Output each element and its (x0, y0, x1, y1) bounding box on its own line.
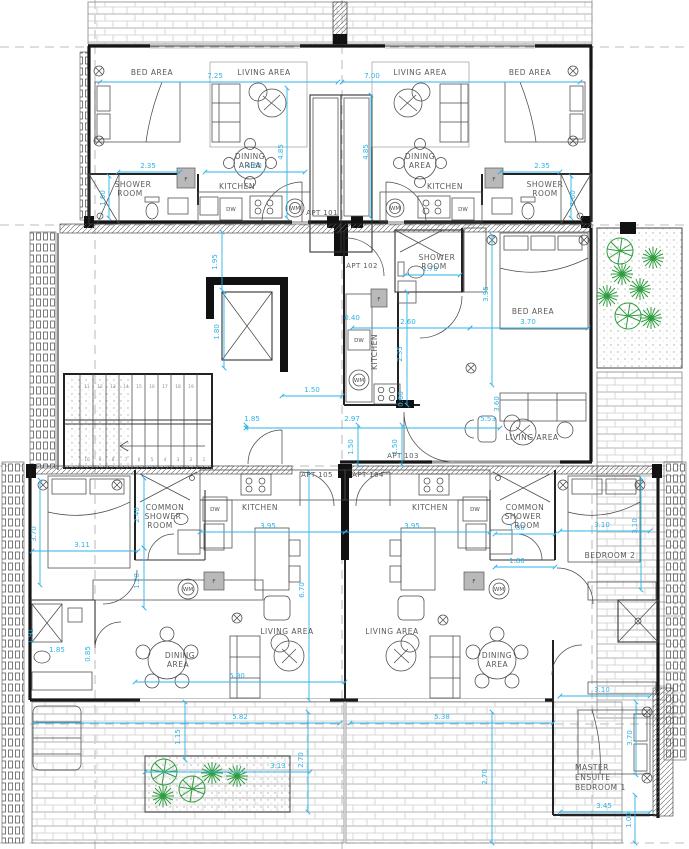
dim-1-91: 1.91 (27, 628, 35, 644)
floor-plan-canvas: 7.25 7.00 4.85 4.85 2.35 4.60 1.60 2.35 … (0, 0, 689, 849)
tr-shower-label-1: SHOWER (527, 180, 564, 189)
apt104-living (386, 596, 460, 698)
top-right-bed (505, 82, 585, 142)
svg-text:3: 3 (177, 457, 180, 463)
dim-3-13: 3.13 (270, 762, 286, 770)
apt102-dw-label: DW (354, 338, 364, 344)
svg-text:9: 9 (99, 457, 102, 463)
bottom-left-planter (145, 756, 290, 812)
tr-dining-label-2: AREA (409, 161, 432, 170)
dim-2-70-a: 2.70 (297, 752, 305, 768)
apt103-label: APT 103 (387, 452, 419, 460)
svg-text:2: 2 (190, 457, 193, 463)
dim-5-53: 5.53 (480, 415, 496, 423)
dim-1-60-a: 1.60 (99, 190, 107, 206)
svg-text:18: 18 (175, 384, 181, 390)
apt105-common-label-3: ROOM (147, 521, 173, 530)
apt104-common-label-1: COMMON (506, 503, 545, 512)
apt104-wm-label: WM (494, 587, 504, 593)
circulation-core (58, 224, 340, 470)
apt101-sofa (212, 84, 240, 142)
dim-1-60-b: 1.60 (569, 190, 577, 206)
dim-1-50-a: 1.50 (304, 386, 320, 394)
apt104-dining-label-2: AREA (486, 660, 509, 669)
apt102-shower-label-2: ROOM (421, 262, 447, 271)
svg-text:1: 1 (203, 457, 206, 463)
apt105-wardrobe-2 (32, 672, 92, 690)
tr-dining-label-1: DINING (405, 152, 435, 161)
apt105-wm-label: WM (183, 587, 193, 593)
svg-text:5: 5 (151, 457, 154, 463)
dim-2-40: 2.40 (133, 507, 141, 523)
dim-2-35-a: 2.35 (140, 162, 156, 170)
dim-5-38: 5.38 (434, 713, 450, 721)
apt105-dining-label-2: AREA (167, 660, 190, 669)
apt102-kitchen-label: KITCHEN (370, 334, 379, 370)
dim-1-80-a: 1.80 (213, 324, 221, 340)
dim-5-82: 5.82 (232, 713, 248, 721)
apt105-kitchen-label: KITCHEN (242, 503, 278, 512)
tr-bed-area-label: BED AREA (509, 68, 552, 77)
master-label-1: MASTER (575, 763, 609, 772)
dim-5-90: 5.90 (229, 672, 245, 680)
apt104-common-label-2: SHOWER (505, 512, 542, 521)
dim-3-70-a: 3.70 (520, 318, 536, 326)
apt101-bed-area-label: BED AREA (131, 68, 174, 77)
dim-7-00: 7.00 (364, 72, 380, 80)
dim-3-11: 3.11 (74, 541, 90, 549)
apt105-label: APT 105 (301, 471, 333, 479)
apt104-dining-label-1: DINING (482, 651, 512, 660)
apt102-living-area-label: LIVING AREA (505, 433, 559, 442)
dim-0-40: 0.40 (344, 314, 360, 322)
dim-3-10-b: 3.10 (631, 518, 639, 534)
svg-text:7: 7 (125, 457, 128, 463)
apt102-wardrobe (464, 228, 486, 292)
apt101-living-area-label: LIVING AREA (237, 68, 291, 77)
svg-text:10: 10 (84, 457, 90, 463)
apt105-dw-label: DW (210, 507, 220, 513)
apt105-f-label: F (212, 579, 215, 585)
apt104-f-label: F (472, 579, 475, 585)
dim-3-45: 3.45 (596, 802, 612, 810)
svg-text:12: 12 (97, 384, 103, 390)
dim-3-60: 3.60 (493, 396, 501, 412)
corridor-door (248, 430, 282, 464)
dim-1-80-c: 1.80 (509, 557, 525, 565)
tr-wm-label: WM (390, 206, 400, 212)
svg-text:13: 13 (110, 384, 116, 390)
apt105-island (255, 528, 289, 590)
apt101-f-label: F (184, 177, 187, 183)
apt101-shower-label-1: SHOWER (115, 180, 152, 189)
dim-1-85-a: 1.85 (244, 415, 260, 423)
apt101-bed (95, 82, 180, 142)
apt105-living (230, 596, 304, 698)
apt102-entry-door (346, 238, 384, 276)
apt104-bedroom2-door (557, 568, 593, 604)
top-terrace (88, 2, 592, 44)
apt102-bedroom-door (420, 296, 462, 338)
svg-text:19: 19 (188, 384, 194, 390)
dim-3-10-a: 3.10 (594, 521, 610, 529)
apt105-ensuite (30, 600, 121, 663)
apt101-kitchen-label: KITCHEN (219, 182, 255, 191)
tr-dw-label: DW (458, 207, 468, 213)
dim-3-70-b: 3.70 (30, 526, 38, 542)
apt101-shower-label-2: ROOM (117, 189, 143, 198)
dim-6-70: 6.70 (298, 582, 306, 598)
dim-2-97: 2.97 (344, 415, 360, 423)
dim-2-35-c: 2.35 (396, 346, 404, 362)
svg-text:8: 8 (112, 457, 115, 463)
dim-2-35-b: 2.35 (534, 162, 550, 170)
tr-living-area-label: LIVING AREA (393, 68, 447, 77)
dim-7-25: 7.25 (207, 72, 223, 80)
apt101-label: APT 101 (306, 209, 338, 217)
dim-2-60: 2.60 (400, 318, 416, 326)
floor-plan-drawing: 7.25 7.00 4.85 4.85 2.35 4.60 1.60 2.35 … (0, 0, 689, 849)
dim-1-50-b: 1.50 (347, 439, 355, 455)
apt101-unit (89, 62, 310, 224)
apt104-kitchen (345, 470, 509, 599)
apt104-common-label-3: ROOM (514, 521, 540, 530)
apt105-dining-label-1: DINING (165, 651, 195, 660)
dim-4-85-left: 4.85 (277, 144, 285, 160)
dim-1-00: 1.00 (625, 812, 633, 828)
tr-f-label: F (492, 177, 495, 183)
dim-3-95-c: 3.95 (404, 522, 420, 530)
dim-4-85-right: 4.85 (362, 144, 370, 160)
apt105-living-area-label: LIVING AREA (260, 627, 314, 636)
apt102-bed-area-label: BED AREA (512, 307, 555, 316)
tr-shower-label-2: ROOM (532, 189, 558, 198)
apt104-bedroom2-label: BEDROOM 2 (585, 551, 636, 560)
apt102-f-label: F (377, 297, 380, 303)
apt104-living-area-label: LIVING AREA (365, 627, 419, 636)
apt102-label: APT 102 (346, 262, 378, 270)
tr-kitchen-label: KITCHEN (427, 182, 463, 191)
apt105-bedroom-door (103, 570, 137, 604)
apt101-dw-label: DW (226, 207, 236, 213)
apt101-dining-label-2: AREA (239, 161, 262, 170)
svg-text:11: 11 (84, 384, 90, 390)
apt102-shower-label-1: SHOWER (419, 253, 456, 262)
apt105-common-label-2: SHOWER (145, 512, 182, 521)
apt102-wm-label: WM (354, 378, 364, 384)
dim-1-20: 1.20 (133, 573, 141, 589)
apt105-common-label-1: COMMON (146, 503, 185, 512)
dim-3-95-b: 3.95 (260, 522, 276, 530)
svg-text:14: 14 (123, 384, 129, 390)
dim-3-95-a: 3.95 (482, 286, 490, 302)
dim-1-95: 1.95 (211, 254, 219, 270)
dim-0-85: 0.85 (84, 646, 92, 662)
svg-text:15: 15 (136, 384, 142, 390)
apt104-dw-label: DW (470, 507, 480, 513)
svg-text:17: 17 (162, 384, 168, 390)
dim-3-10-c: 3.10 (594, 686, 610, 694)
apt101-dining-label-1: DINING (235, 152, 265, 161)
dim-1-15: 1.15 (174, 729, 182, 745)
apt104-island (401, 528, 435, 590)
dim-0-60: 0.60 (397, 391, 405, 407)
svg-text:6: 6 (138, 457, 141, 463)
dim-3-70-c: 3.70 (626, 730, 634, 746)
top-right-entry-door (386, 182, 426, 222)
dim-2-70-b: 2.70 (481, 769, 489, 785)
right-planter (596, 222, 682, 368)
svg-text:4: 4 (164, 457, 167, 463)
dim-1-85-b: 1.85 (49, 646, 65, 654)
master-label-2: ENSUITE (575, 773, 611, 782)
apt104-kitchen-label: KITCHEN (412, 503, 448, 512)
master-label-3: BEDROOM 1 (575, 783, 626, 792)
apt101-wm-label: WM (290, 206, 300, 212)
svg-text:16: 16 (149, 384, 155, 390)
apt104-label: APT 104 (352, 471, 384, 479)
top-right-sofa (440, 84, 468, 142)
